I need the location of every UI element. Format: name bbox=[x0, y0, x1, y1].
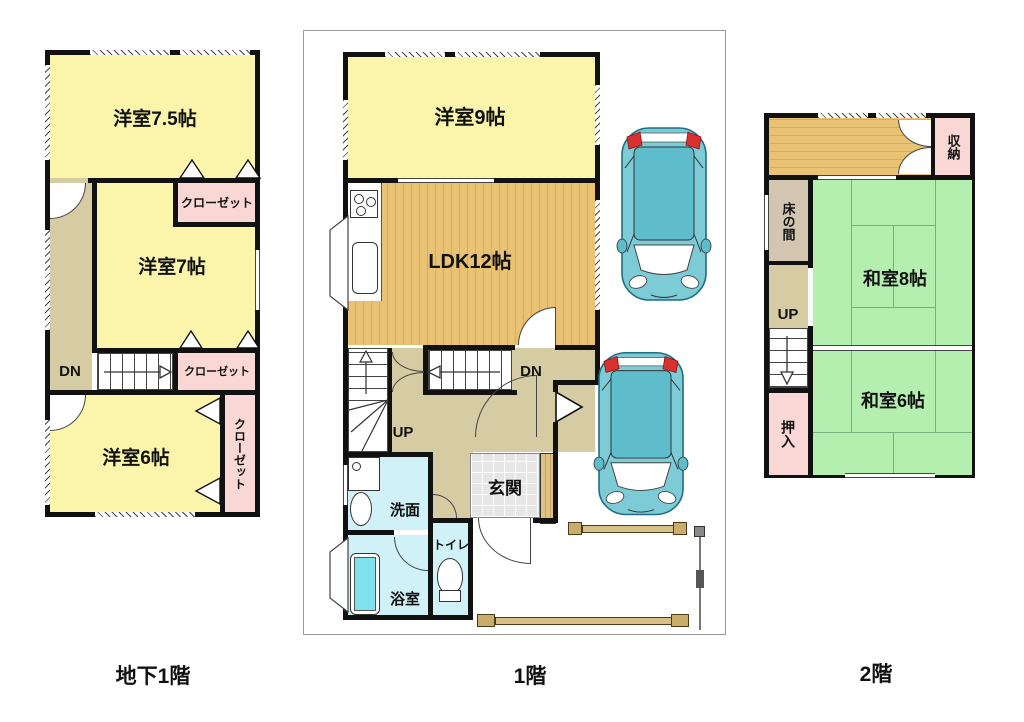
bathtub-water bbox=[354, 557, 376, 611]
window bbox=[343, 100, 348, 160]
wall bbox=[343, 615, 473, 620]
window bbox=[45, 65, 50, 160]
room-label: 洗面 bbox=[382, 499, 428, 519]
window bbox=[455, 52, 540, 57]
stairs-up-label: UP bbox=[770, 303, 806, 325]
wall bbox=[553, 385, 558, 392]
wall bbox=[553, 380, 600, 385]
toilet-tank bbox=[439, 590, 461, 602]
stove-burner bbox=[366, 197, 376, 207]
sink-icon bbox=[350, 492, 372, 526]
fence-bar-icon bbox=[582, 525, 675, 533]
room-label: 洋室9帖 bbox=[400, 102, 540, 128]
gate-latch bbox=[696, 570, 704, 588]
vanity-knob bbox=[352, 462, 361, 471]
gate-pole-cap bbox=[694, 526, 705, 537]
room-label: 浴室 bbox=[382, 588, 428, 608]
floor-title-2f: 2階 bbox=[841, 659, 911, 687]
window bbox=[90, 50, 170, 55]
window bbox=[180, 50, 250, 55]
fence-post bbox=[671, 614, 689, 627]
window bbox=[595, 85, 600, 145]
room-label: 洋室7.5帖 bbox=[85, 104, 225, 130]
stairs-up-label: UP bbox=[388, 422, 418, 442]
fence-bar-icon bbox=[495, 617, 673, 625]
stairs-dn-label: DN bbox=[514, 360, 548, 382]
room-label: 洋室7帖 bbox=[102, 252, 242, 278]
stairs-up-1f bbox=[348, 348, 388, 452]
floor-title-1f: 1階 bbox=[495, 661, 565, 689]
tatami-line bbox=[851, 307, 936, 308]
fence-post bbox=[673, 522, 687, 535]
room-label: トイレ bbox=[431, 536, 471, 552]
fence-post bbox=[568, 522, 582, 535]
room-label: 和室6帖 bbox=[843, 388, 943, 412]
room-label: 和室8帖 bbox=[845, 266, 945, 290]
window bbox=[398, 178, 494, 183]
wall bbox=[173, 222, 255, 227]
closet-label: クローゼット bbox=[180, 194, 254, 211]
room-label: 床の間 bbox=[773, 185, 803, 257]
stove-burner bbox=[354, 194, 364, 204]
bathtub-icon bbox=[350, 553, 380, 615]
stairs-dn-1f bbox=[428, 350, 512, 390]
window bbox=[45, 420, 50, 505]
room-label: 押入 bbox=[773, 398, 803, 470]
floor-title-b1f: 地下1階 bbox=[98, 661, 208, 689]
stairs-dn-label: DN bbox=[52, 360, 88, 382]
room-label: LDK12帖 bbox=[400, 246, 540, 272]
window bbox=[343, 465, 348, 505]
room-label: 収納 bbox=[939, 124, 967, 170]
room-label: 玄関 bbox=[473, 475, 537, 497]
tatami-line bbox=[935, 180, 936, 345]
fence-post bbox=[477, 614, 495, 627]
window bbox=[818, 113, 868, 118]
wall bbox=[553, 422, 558, 522]
closet-label: クローゼット bbox=[180, 362, 254, 379]
tatami-line bbox=[851, 180, 852, 345]
stairs-up-2f bbox=[769, 328, 808, 388]
toilet-icon bbox=[437, 558, 463, 594]
stove-burner bbox=[356, 206, 366, 216]
wall bbox=[555, 345, 595, 350]
window bbox=[595, 200, 600, 310]
tatami-line bbox=[893, 432, 894, 475]
window bbox=[45, 230, 50, 330]
window bbox=[845, 473, 935, 478]
window bbox=[876, 113, 926, 118]
window bbox=[95, 512, 195, 517]
stairs-dn-b1f bbox=[97, 353, 173, 390]
window bbox=[764, 195, 769, 250]
room-label: 洋室6帖 bbox=[66, 443, 206, 469]
window bbox=[255, 250, 260, 310]
window bbox=[385, 52, 445, 57]
closet-label: クローゼット bbox=[228, 400, 252, 508]
sink-icon bbox=[352, 242, 378, 294]
stair-treads bbox=[349, 349, 387, 401]
floor-plan-canvas: 洋室7.5帖 クローゼット 洋室7帖 DN クローゼット 洋室6帖 クローゼット bbox=[0, 0, 1024, 722]
wall bbox=[425, 345, 515, 350]
